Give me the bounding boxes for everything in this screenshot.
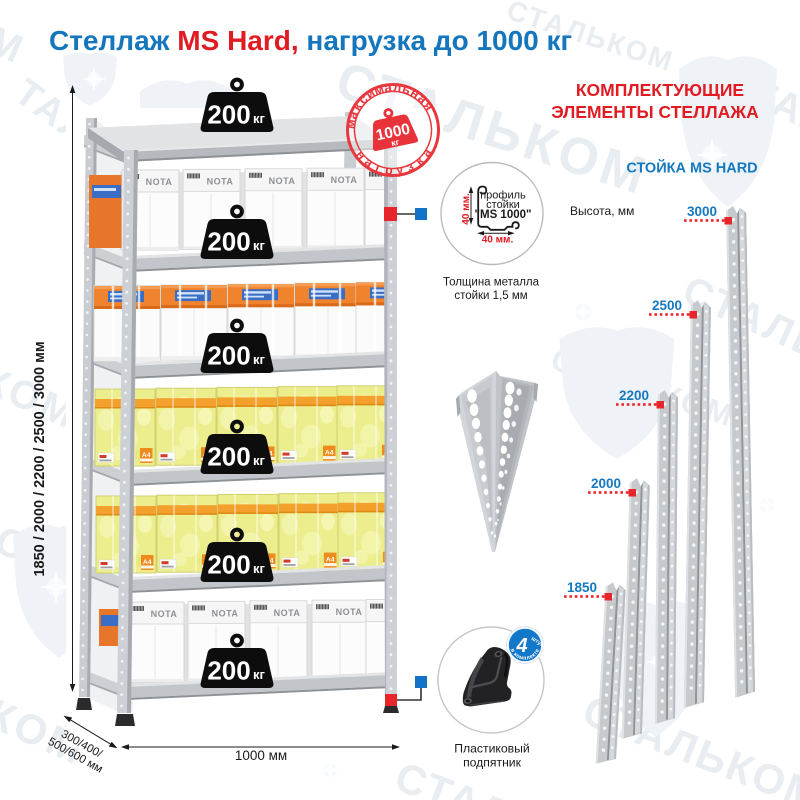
svg-text:1850 / 2000 / 2200 / 2500 / 30: 1850 / 2000 / 2200 / 2500 / 3000 мм xyxy=(32,341,48,576)
svg-text:КОМ: КОМ xyxy=(0,0,32,73)
svg-text:Пластиковыйподпятник: Пластиковыйподпятник xyxy=(454,742,529,770)
svg-text:Толщина металластойки 1,5 мм: Толщина металластойки 1,5 мм xyxy=(443,277,540,303)
svg-text:СТОЙКА MS HARD: СТОЙКА MS HARD xyxy=(626,159,757,177)
svg-text:Высота, мм: Высота, мм xyxy=(570,204,634,218)
svg-text:1850: 1850 xyxy=(567,580,597,595)
svg-text:40 мм.: 40 мм. xyxy=(461,193,472,225)
svg-text:2000: 2000 xyxy=(591,476,621,491)
svg-text:40 мм.: 40 мм. xyxy=(482,235,514,246)
svg-text:2200: 2200 xyxy=(619,388,649,403)
svg-text:2500: 2500 xyxy=(652,298,682,313)
svg-text:1000 мм: 1000 мм xyxy=(235,748,287,763)
svg-text:"MS 1000": "MS 1000" xyxy=(475,209,532,221)
svg-text:Стеллаж MS Hard, нагрузка до 1: Стеллаж MS Hard, нагрузка до 1000 кг xyxy=(49,25,572,56)
svg-text:3000: 3000 xyxy=(687,204,717,219)
